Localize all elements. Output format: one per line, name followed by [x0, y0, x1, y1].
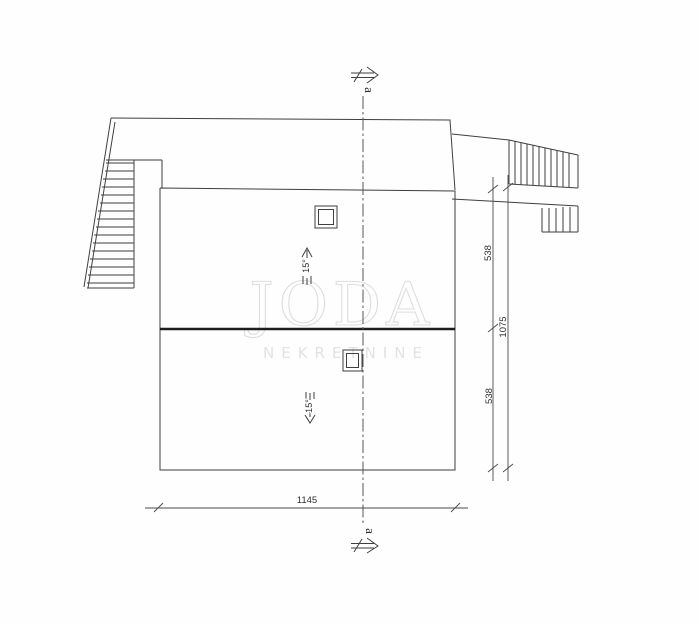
- section-marker-top: a: [351, 67, 378, 93]
- roof-plan-drawing: JODA NEKRETNINE a a 15° 15°: [0, 0, 699, 624]
- dim-text-right-upper: 538: [483, 245, 494, 261]
- slope-label-lower: 15°: [304, 399, 314, 413]
- section-marker-bottom: a: [351, 528, 378, 553]
- right-stair-hatch-upper: [515, 141, 569, 187]
- slope-marker-lower: 15°: [304, 392, 315, 423]
- dimension-right: 538 1075 538: [483, 175, 513, 481]
- dim-text-right-lower: 538: [484, 388, 495, 404]
- slope-label-upper: 15°: [301, 259, 311, 273]
- chimney-1: [315, 206, 337, 228]
- section-label-top: a: [362, 87, 377, 93]
- upper-roof-outline: [111, 118, 455, 190]
- right-stair-hatch-lower: [549, 207, 570, 232]
- floor-plan-canvas: JODA NEKRETNINE a a 15° 15°: [0, 0, 699, 624]
- dim-text-right-total: 1075: [498, 316, 509, 337]
- section-arrow-bottom-icon: [351, 538, 378, 553]
- section-arrow-top-icon: [351, 67, 378, 83]
- dimension-bottom: 1145: [145, 495, 468, 512]
- dim-text-bottom: 1145: [297, 495, 317, 506]
- watermark: JODA NEKRETNINE: [244, 270, 435, 362]
- section-label-bottom: a: [363, 528, 378, 534]
